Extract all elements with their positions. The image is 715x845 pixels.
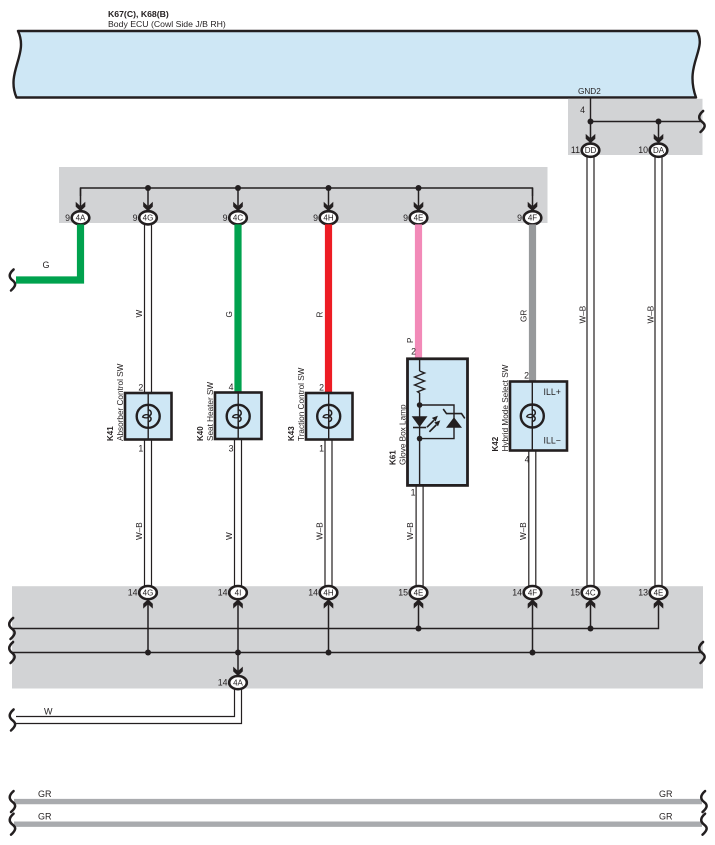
svg-text:Seat Heater SW: Seat Heater SW bbox=[206, 382, 215, 441]
svg-text:ILL−: ILL− bbox=[544, 436, 561, 446]
svg-text:13: 13 bbox=[638, 588, 648, 598]
svg-text:14: 14 bbox=[218, 678, 228, 688]
svg-text:4H: 4H bbox=[323, 588, 333, 597]
svg-text:DD: DD bbox=[585, 146, 597, 155]
svg-text:9: 9 bbox=[517, 213, 522, 223]
svg-text:3: 3 bbox=[229, 444, 234, 454]
svg-text:4G: 4G bbox=[143, 588, 154, 597]
svg-text:4E: 4E bbox=[654, 588, 664, 597]
svg-text:Absorber Control SW: Absorber Control SW bbox=[116, 363, 125, 441]
svg-text:4F: 4F bbox=[528, 214, 537, 223]
svg-text:W–B: W–B bbox=[579, 305, 588, 323]
svg-text:2: 2 bbox=[411, 347, 416, 357]
svg-text:10: 10 bbox=[638, 145, 648, 155]
svg-text:W–B: W–B bbox=[406, 522, 415, 540]
svg-text:4E: 4E bbox=[414, 214, 424, 223]
svg-text:Glove Box Lamp: Glove Box Lamp bbox=[398, 404, 407, 465]
svg-text:4G: 4G bbox=[143, 214, 154, 223]
svg-text:K41: K41 bbox=[106, 426, 115, 441]
svg-text:GND2: GND2 bbox=[578, 87, 601, 96]
svg-text:4A: 4A bbox=[76, 214, 86, 223]
svg-text:Body ECU (Cowl Side J/B RH): Body ECU (Cowl Side J/B RH) bbox=[108, 19, 226, 29]
svg-text:G: G bbox=[225, 311, 234, 317]
svg-text:9: 9 bbox=[65, 213, 70, 223]
svg-text:9: 9 bbox=[313, 213, 318, 223]
svg-text:15: 15 bbox=[570, 588, 580, 598]
svg-text:K42: K42 bbox=[491, 436, 500, 451]
svg-text:W: W bbox=[225, 532, 234, 540]
svg-text:P: P bbox=[406, 337, 415, 343]
svg-text:4I: 4I bbox=[235, 588, 242, 597]
svg-text:4A: 4A bbox=[233, 678, 243, 687]
svg-text:K40: K40 bbox=[196, 426, 205, 441]
svg-text:R: R bbox=[316, 312, 325, 318]
svg-text:W–B: W–B bbox=[135, 522, 144, 540]
svg-text:4C: 4C bbox=[585, 588, 595, 597]
svg-text:1: 1 bbox=[138, 444, 143, 454]
svg-text:2: 2 bbox=[524, 371, 529, 381]
svg-text:14: 14 bbox=[308, 588, 318, 598]
svg-text:GR: GR bbox=[520, 310, 529, 322]
svg-text:Traction Control SW: Traction Control SW bbox=[297, 367, 306, 441]
svg-text:K43: K43 bbox=[287, 426, 296, 441]
svg-text:4H: 4H bbox=[323, 214, 333, 223]
svg-text:W: W bbox=[44, 707, 53, 717]
svg-text:4C: 4C bbox=[233, 214, 243, 223]
svg-text:G: G bbox=[43, 260, 50, 270]
svg-text:K67(C), K68(B): K67(C), K68(B) bbox=[108, 9, 169, 19]
svg-text:4: 4 bbox=[229, 382, 234, 392]
svg-text:2: 2 bbox=[138, 383, 143, 393]
svg-text:1: 1 bbox=[319, 444, 324, 454]
svg-text:9: 9 bbox=[403, 213, 408, 223]
svg-text:W–B: W–B bbox=[519, 522, 528, 540]
svg-text:W: W bbox=[135, 310, 144, 318]
svg-text:GR: GR bbox=[38, 812, 52, 822]
svg-text:14: 14 bbox=[128, 588, 138, 598]
svg-text:Hybrid Mode Select SW: Hybrid Mode Select SW bbox=[501, 364, 510, 451]
svg-text:9: 9 bbox=[133, 213, 138, 223]
svg-text:1: 1 bbox=[411, 488, 416, 498]
svg-text:GR: GR bbox=[659, 812, 673, 822]
svg-text:4: 4 bbox=[580, 105, 585, 115]
svg-text:W–B: W–B bbox=[316, 522, 325, 540]
svg-text:15: 15 bbox=[398, 588, 408, 598]
svg-text:11: 11 bbox=[571, 145, 580, 155]
svg-text:DA: DA bbox=[653, 146, 665, 155]
svg-text:4E: 4E bbox=[414, 588, 424, 597]
svg-text:W–B: W–B bbox=[647, 305, 656, 323]
svg-text:K61: K61 bbox=[388, 450, 397, 465]
svg-text:GR: GR bbox=[659, 789, 673, 799]
svg-text:14: 14 bbox=[512, 588, 522, 598]
svg-text:4F: 4F bbox=[528, 588, 537, 597]
svg-text:14: 14 bbox=[218, 588, 228, 598]
svg-text:GR: GR bbox=[38, 789, 52, 799]
svg-text:9: 9 bbox=[223, 213, 228, 223]
svg-text:2: 2 bbox=[319, 383, 324, 393]
svg-text:ILL+: ILL+ bbox=[544, 387, 561, 397]
